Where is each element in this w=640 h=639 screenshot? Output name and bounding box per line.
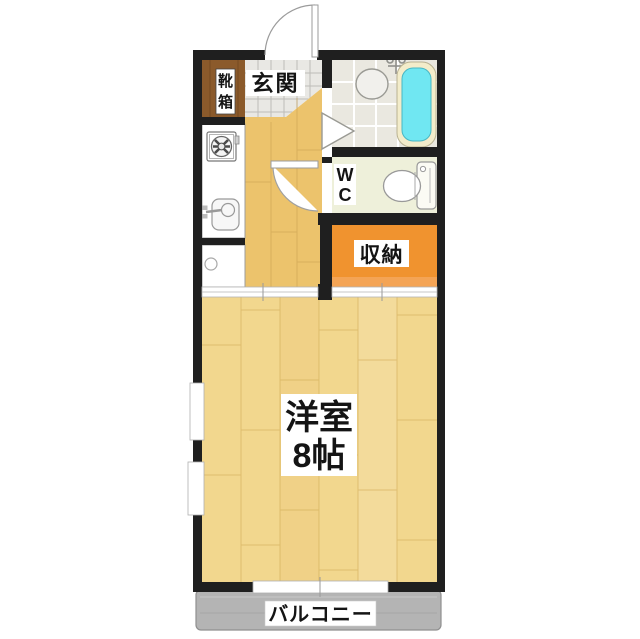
shoe-cabinet-label: 靴 箱 <box>216 69 235 114</box>
wall-bottom-right <box>388 582 445 592</box>
svg-text:玄関: 玄関 <box>251 71 299 96</box>
wc-label-line1: W <box>337 165 354 185</box>
wc-door-leaf <box>271 161 318 168</box>
main-room-label-line2: 8帖 <box>293 437 346 475</box>
window-left-lower <box>188 462 204 515</box>
wall-right <box>437 60 445 582</box>
storage-edge-highlight <box>332 277 437 287</box>
entrance-label: 玄関 <box>246 70 305 96</box>
wall-under-counter <box>193 238 245 245</box>
entrance-door-swing <box>265 5 318 57</box>
wall-partition-center <box>318 284 332 300</box>
shoe-cabinet-label-line2: 箱 <box>218 93 233 111</box>
wall-wc-corner <box>322 157 332 163</box>
floor-plan: 靴 箱 玄関 W C 収納 洋室 8帖 バルコニー <box>0 0 640 639</box>
wc-doorway <box>322 163 332 210</box>
stove-icon <box>207 132 239 161</box>
window-left-upper <box>190 383 204 440</box>
wall-left-upper <box>193 60 202 383</box>
main-room-label-line1: 洋室 <box>285 398 353 437</box>
svg-text:収納: 収納 <box>360 243 404 267</box>
wall-storage-left <box>320 225 332 287</box>
wall-top-left <box>193 50 265 60</box>
shoe-cabinet-label-line1: 靴 <box>218 72 233 90</box>
storage-label: 収納 <box>354 240 409 267</box>
wall-under-shoe-cabinet <box>193 117 245 125</box>
entrance-door-arc <box>265 5 315 55</box>
bathtub <box>397 62 436 147</box>
entrance-door-leaf <box>312 5 318 57</box>
bathtub-water <box>402 68 431 141</box>
entrance-door-opening <box>265 50 317 60</box>
floor-plan-page: 靴 箱 玄関 W C 収納 洋室 8帖 バルコニー <box>0 0 640 639</box>
wc-label-line2: C <box>339 185 352 205</box>
wall-bath-wc <box>322 147 445 157</box>
kitchen-tap <box>203 206 208 211</box>
stove-knob <box>235 136 239 144</box>
balcony-label: バルコニー <box>265 601 376 626</box>
wall-wc-storage <box>318 213 445 225</box>
plank-shade <box>358 287 397 582</box>
kitchen-tap <box>203 214 208 219</box>
main-room-label: 洋室 8帖 <box>281 394 357 476</box>
wall-left-between-windows <box>193 440 202 462</box>
wc-label: W C <box>334 164 356 205</box>
svg-text:バルコニー: バルコニー <box>268 603 373 626</box>
laundry-drain-icon <box>205 258 217 270</box>
wall-left-lower <box>193 515 202 582</box>
toilet-flush-button <box>420 166 425 171</box>
wall-bottom-left <box>193 582 253 592</box>
wall-top-right <box>317 50 445 60</box>
balcony-texture-line <box>200 596 437 598</box>
wall-genkan-bath <box>322 60 332 88</box>
